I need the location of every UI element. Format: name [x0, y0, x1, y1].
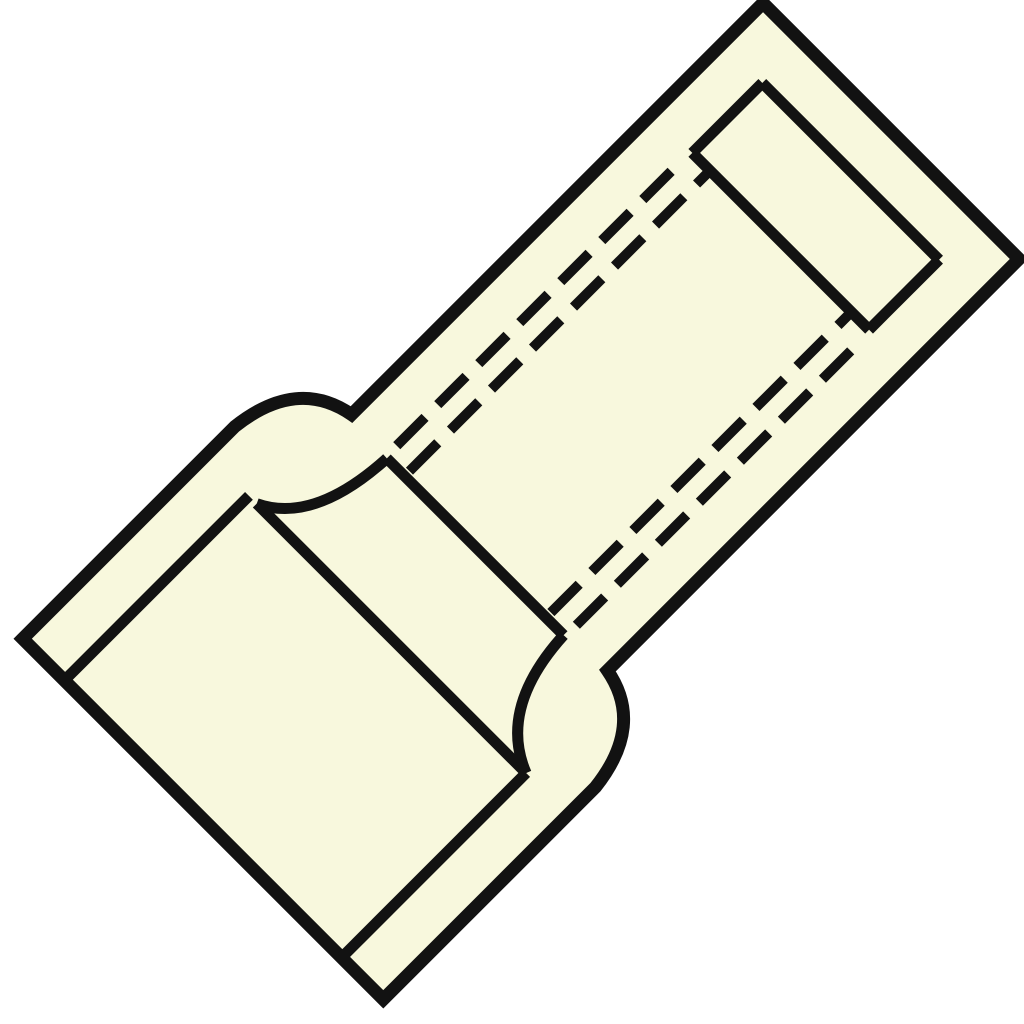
butt-connector-line-art	[0, 0, 1024, 1024]
connector-diagram-stage	[0, 0, 1024, 1024]
connector-outline	[23, 0, 1024, 999]
butt-splice-connector-line-art	[23, 0, 1024, 999]
